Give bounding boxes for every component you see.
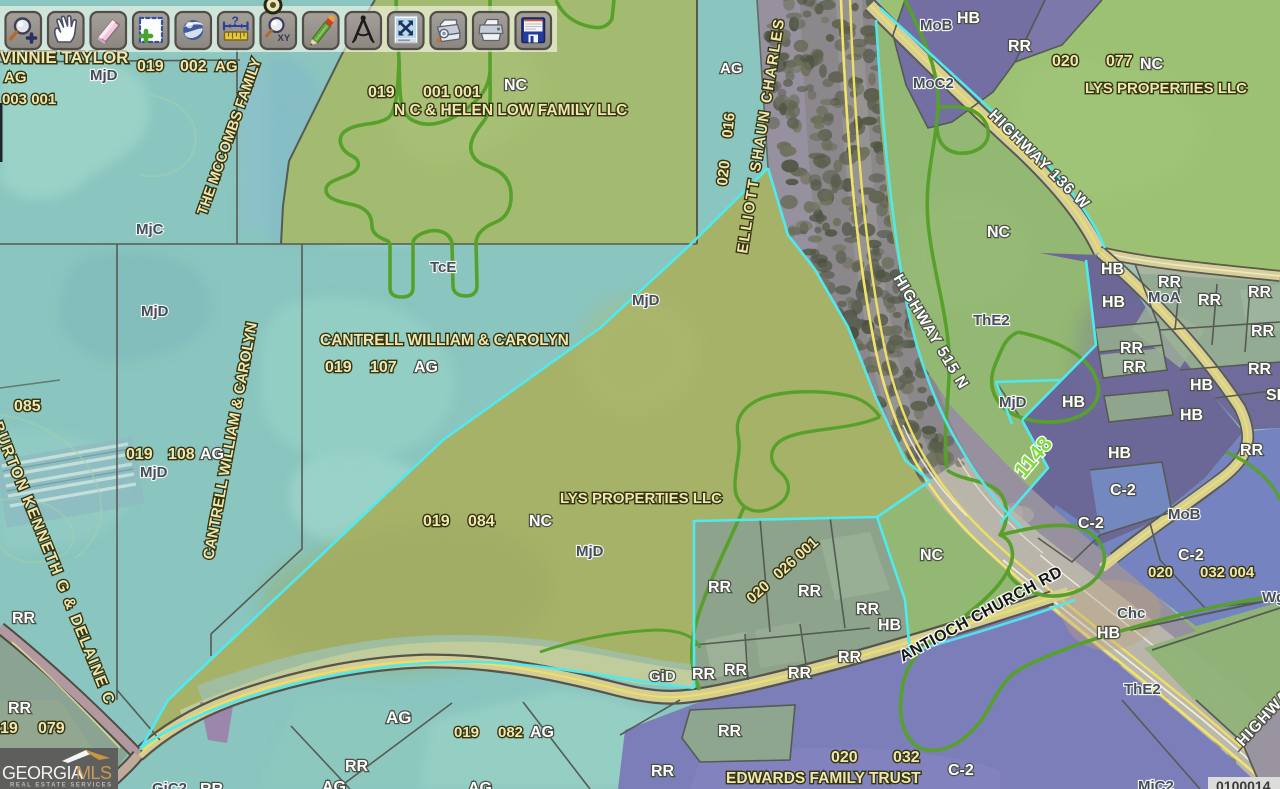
svg-text:GEORGIA: GEORGIA bbox=[2, 763, 83, 783]
svg-text:020: 020 bbox=[1148, 564, 1173, 581]
svg-text:HB: HB bbox=[1097, 625, 1120, 642]
svg-text:020: 020 bbox=[831, 749, 858, 766]
svg-text:019: 019 bbox=[325, 359, 352, 376]
svg-text:CANTRELL WILLIAM & CAROLYN: CANTRELL WILLIAM & CAROLYN bbox=[320, 332, 569, 349]
svg-text:HB: HB bbox=[957, 10, 980, 27]
svg-text:019: 019 bbox=[454, 724, 479, 741]
svg-text:RR: RR bbox=[1008, 38, 1032, 55]
svg-text:MjD: MjD bbox=[140, 464, 168, 481]
svg-text:RR: RR bbox=[838, 649, 862, 666]
svg-text:MjD: MjD bbox=[141, 303, 169, 320]
svg-text:N C & HELEN LOW FAMILY LLC: N C & HELEN LOW FAMILY LLC bbox=[394, 102, 627, 119]
svg-text:082: 082 bbox=[498, 724, 523, 741]
svg-text:032 004: 032 004 bbox=[1200, 564, 1255, 581]
svg-text:LYS PROPERTIES LLC: LYS PROPERTIES LLC bbox=[560, 490, 722, 507]
svg-text:RR: RR bbox=[651, 763, 675, 780]
svg-text:NC: NC bbox=[504, 77, 528, 94]
svg-text:RR: RR bbox=[856, 601, 880, 618]
svg-text:ThE2: ThE2 bbox=[973, 312, 1010, 329]
svg-text:019: 019 bbox=[368, 84, 395, 101]
svg-text:RR: RR bbox=[1240, 442, 1264, 459]
svg-text:AG: AG bbox=[530, 724, 554, 741]
svg-text:RR: RR bbox=[1120, 340, 1144, 357]
svg-text:HB: HB bbox=[1062, 394, 1085, 411]
svg-text:RR: RR bbox=[1248, 284, 1272, 301]
svg-text:HB: HB bbox=[1180, 407, 1203, 424]
svg-text:RR: RR bbox=[708, 579, 732, 596]
svg-text:002: 002 bbox=[180, 58, 207, 75]
svg-text:AG: AG bbox=[200, 446, 224, 463]
svg-text:108: 108 bbox=[168, 446, 195, 463]
svg-text:NC: NC bbox=[1140, 56, 1164, 73]
svg-text:016: 016 bbox=[719, 112, 739, 139]
svg-text:SR: SR bbox=[1266, 387, 1280, 404]
svg-text:RR: RR bbox=[1248, 361, 1272, 378]
svg-text:MjD: MjD bbox=[576, 543, 604, 560]
svg-text:MjC: MjC bbox=[136, 221, 164, 238]
svg-text:003 001: 003 001 bbox=[2, 91, 56, 108]
svg-text:019: 019 bbox=[423, 513, 450, 530]
svg-text:AG: AG bbox=[322, 779, 346, 789]
svg-text:C-2: C-2 bbox=[1178, 547, 1204, 564]
svg-text:HB: HB bbox=[1108, 445, 1131, 462]
svg-text:020: 020 bbox=[714, 160, 734, 187]
svg-text:GiD: GiD bbox=[649, 668, 676, 685]
svg-text:RR: RR bbox=[200, 781, 224, 789]
svg-text:RR: RR bbox=[1198, 292, 1222, 309]
svg-text:084: 084 bbox=[468, 513, 495, 530]
svg-text:?: ? bbox=[232, 14, 239, 28]
svg-text:RR: RR bbox=[345, 758, 369, 775]
svg-text:032: 032 bbox=[893, 749, 920, 766]
svg-text:19: 19 bbox=[0, 720, 18, 737]
svg-text:NC: NC bbox=[987, 224, 1011, 241]
svg-text:AG: AG bbox=[468, 780, 492, 789]
svg-text:MLS: MLS bbox=[76, 763, 112, 783]
svg-text:LYS PROPERTIES LLC: LYS PROPERTIES LLC bbox=[1085, 80, 1247, 97]
svg-text:HB: HB bbox=[1190, 377, 1213, 394]
svg-text:C-2: C-2 bbox=[948, 762, 974, 779]
svg-text:NC: NC bbox=[529, 513, 553, 530]
svg-text:HB: HB bbox=[878, 617, 901, 634]
svg-text:MoB: MoB bbox=[920, 17, 953, 34]
svg-text:EDWARDS FAMILY TRUST: EDWARDS FAMILY TRUST bbox=[726, 770, 921, 787]
svg-text:077: 077 bbox=[1106, 53, 1133, 70]
svg-text:RR: RR bbox=[12, 610, 36, 627]
svg-text:085: 085 bbox=[14, 398, 41, 415]
svg-text:019: 019 bbox=[137, 58, 164, 75]
svg-text:AG: AG bbox=[215, 58, 238, 75]
svg-text:MoA: MoA bbox=[1148, 289, 1181, 306]
svg-text:019: 019 bbox=[126, 446, 153, 463]
svg-text:001 001: 001 001 bbox=[423, 84, 481, 101]
svg-text:NC: NC bbox=[920, 547, 944, 564]
svg-text:079: 079 bbox=[38, 720, 65, 737]
svg-text:MiC2: MiC2 bbox=[1138, 778, 1174, 789]
svg-text:RR: RR bbox=[718, 723, 742, 740]
svg-text:AG: AG bbox=[414, 359, 438, 376]
svg-text:RR: RR bbox=[8, 700, 32, 717]
svg-text:RR: RR bbox=[788, 665, 812, 682]
svg-text:HB: HB bbox=[1102, 294, 1125, 311]
svg-text:Chc: Chc bbox=[1117, 605, 1145, 622]
svg-text:HB: HB bbox=[1101, 261, 1124, 278]
svg-text:MoC2: MoC2 bbox=[913, 75, 954, 92]
svg-text:RR: RR bbox=[724, 662, 748, 679]
svg-text:ThE2: ThE2 bbox=[1124, 681, 1161, 698]
svg-text:C-2: C-2 bbox=[1110, 482, 1136, 499]
svg-text:XY: XY bbox=[278, 33, 291, 44]
svg-text:RR: RR bbox=[692, 666, 716, 683]
svg-text:MjD: MjD bbox=[90, 67, 118, 84]
svg-text:AG: AG bbox=[720, 60, 743, 77]
svg-text:GiC2: GiC2 bbox=[152, 780, 187, 789]
svg-text:020: 020 bbox=[1052, 53, 1079, 70]
svg-text:AG: AG bbox=[386, 708, 412, 727]
svg-text:RR: RR bbox=[1251, 323, 1275, 340]
svg-text:WgB: WgB bbox=[1262, 589, 1280, 606]
svg-text:C-2: C-2 bbox=[1078, 515, 1104, 532]
svg-text:MjD: MjD bbox=[632, 292, 660, 309]
svg-text:107: 107 bbox=[370, 359, 397, 376]
svg-text:0100014: 0100014 bbox=[1216, 778, 1271, 789]
svg-text:RR: RR bbox=[1123, 359, 1147, 376]
svg-text:MjD: MjD bbox=[999, 394, 1027, 411]
svg-text:RR: RR bbox=[798, 583, 822, 600]
svg-text:AG: AG bbox=[4, 69, 27, 86]
svg-text:TcE: TcE bbox=[430, 259, 456, 276]
svg-text:MoB: MoB bbox=[1168, 506, 1201, 523]
svg-text:REAL ESTATE SERVICES: REAL ESTATE SERVICES bbox=[10, 783, 113, 789]
